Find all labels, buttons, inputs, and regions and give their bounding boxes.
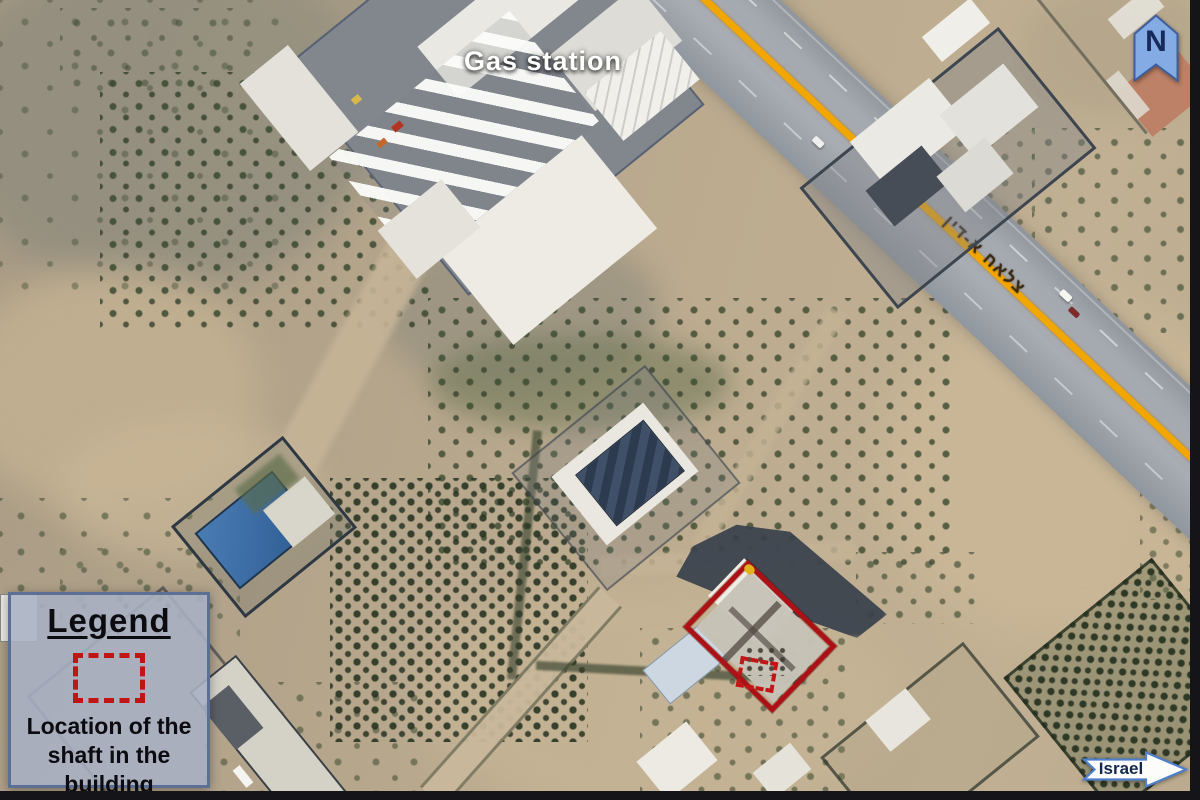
north-arrow: N (1133, 14, 1179, 82)
legend-description-line: Location of the (11, 712, 207, 741)
north-letter: N (1133, 25, 1179, 59)
israel-label: Israel (1090, 759, 1152, 779)
gas-station-label: Gas station (464, 46, 622, 77)
satellite-map: צלאח א-דין (0, 0, 1200, 800)
legend-description: Location of the shaft in the building (11, 712, 207, 799)
frame-bottom (0, 791, 1200, 800)
legend-panel: Legend Location of the shaft in the buil… (8, 592, 210, 788)
legend-description-line: shaft in the (11, 741, 207, 770)
car (811, 135, 825, 148)
shaft-marker (736, 656, 779, 693)
israel-arrow: Israel (1082, 751, 1188, 788)
orchard (60, 8, 260, 88)
legend-shaft-icon (73, 653, 145, 703)
frame-right (1190, 0, 1200, 800)
legend-title: Legend (11, 602, 207, 640)
